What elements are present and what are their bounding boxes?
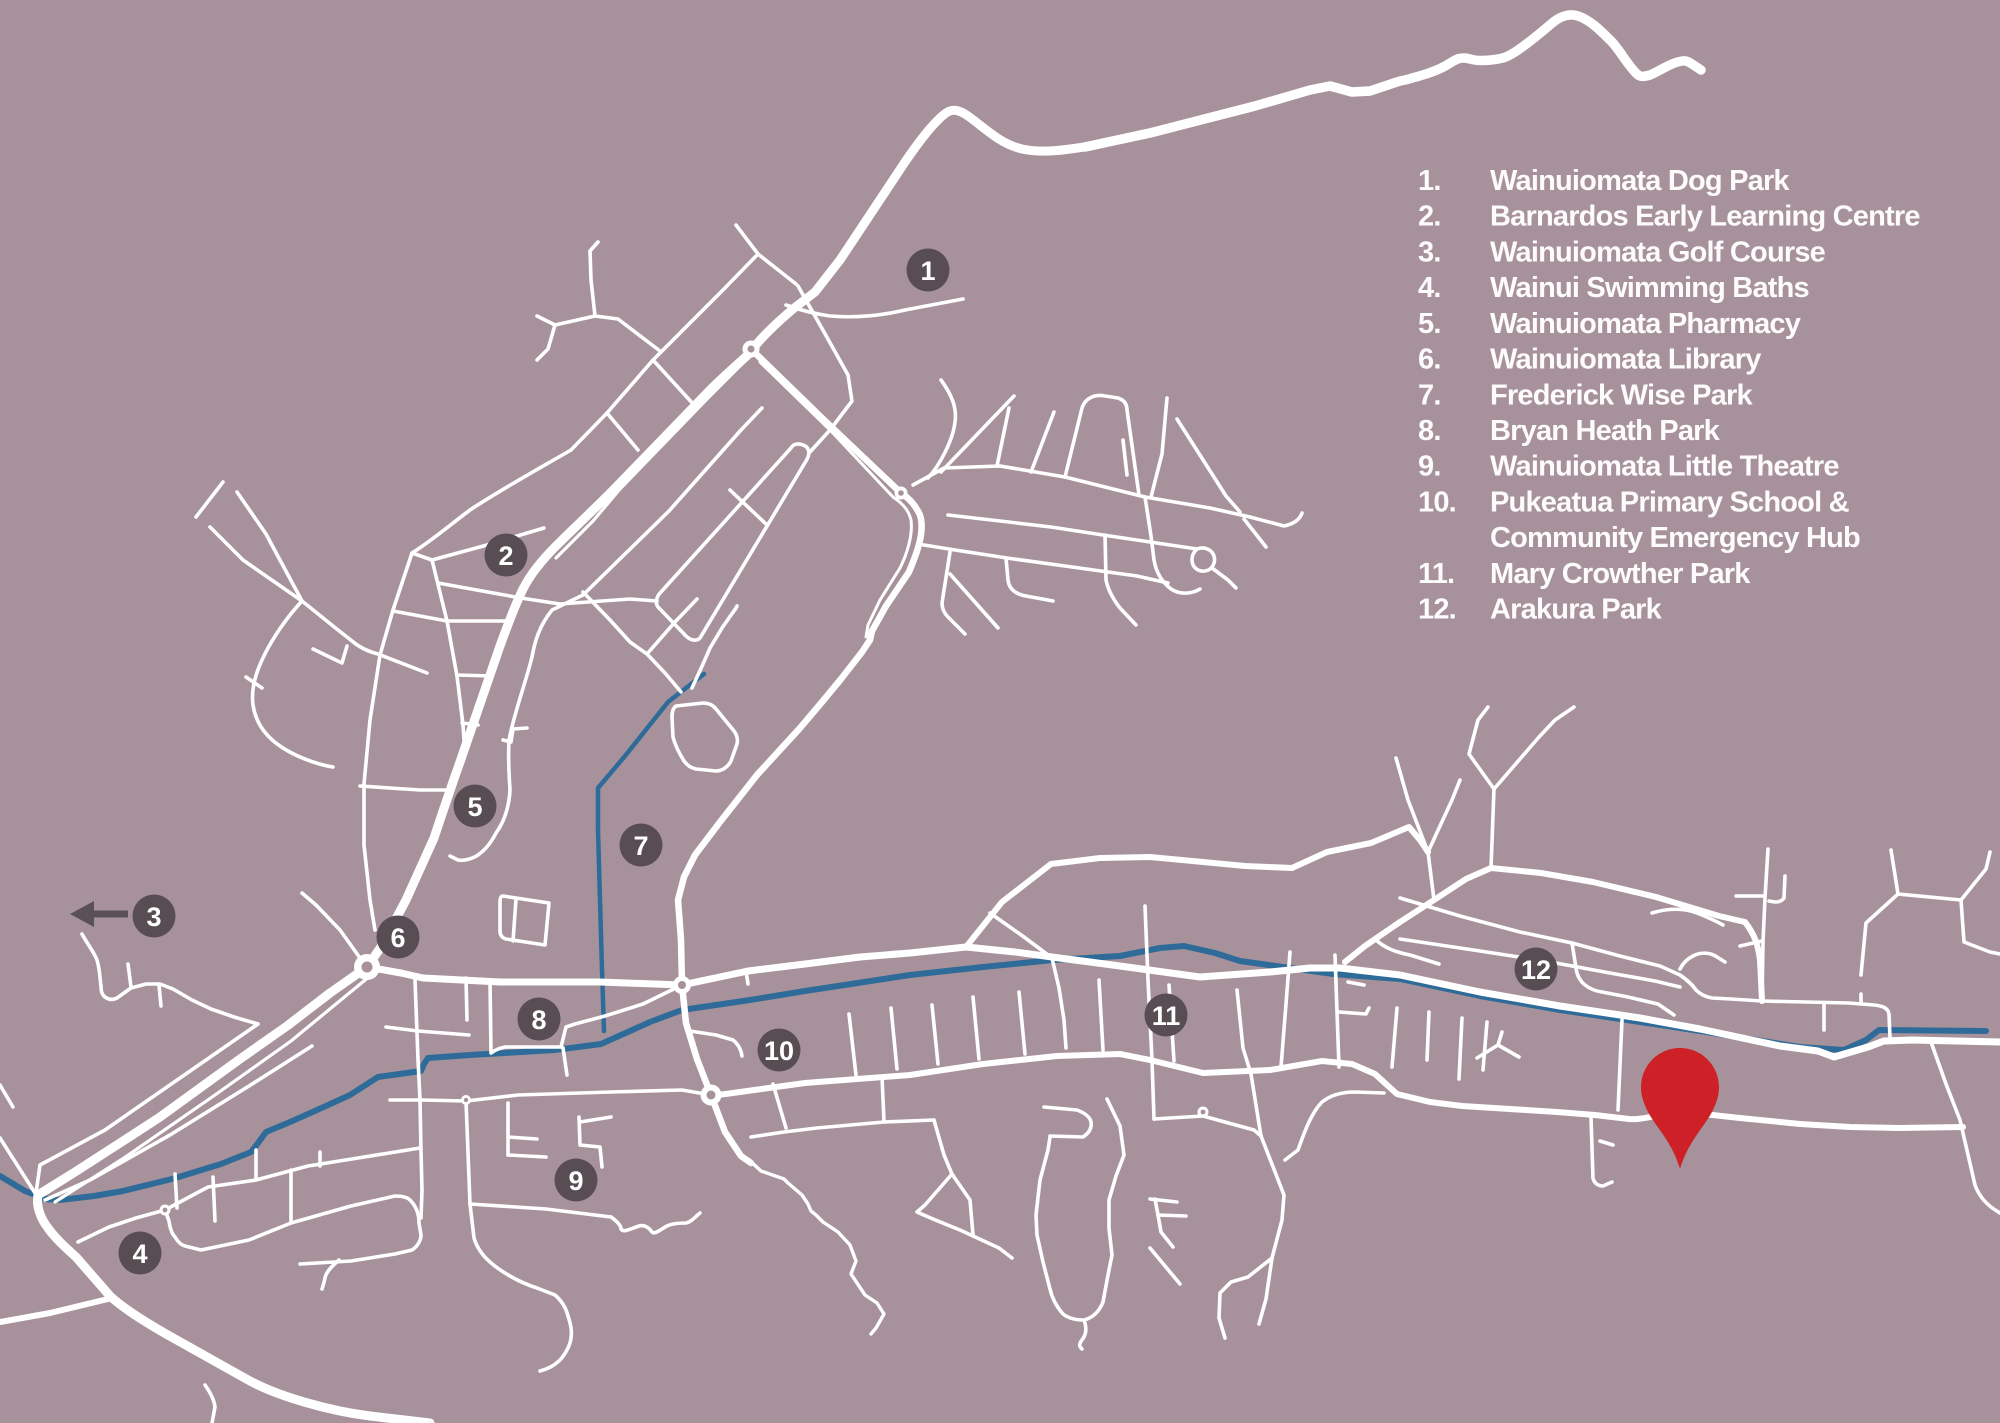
svg-text:Pukeatua Primary School &: Pukeatua Primary School &: [1490, 486, 1850, 518]
svg-text:4.: 4.: [1418, 272, 1441, 304]
svg-text:1.: 1.: [1418, 165, 1441, 197]
svg-text:Barnardos Early Learning Centr: Barnardos Early Learning Centre: [1490, 201, 1920, 233]
svg-text:5.: 5.: [1418, 308, 1441, 340]
svg-text:8.: 8.: [1418, 415, 1441, 447]
svg-text:6: 6: [390, 923, 405, 953]
svg-text:Wainuiomata Pharmacy: Wainuiomata Pharmacy: [1490, 308, 1801, 340]
svg-text:6.: 6.: [1418, 344, 1441, 376]
svg-text:Community Emergency Hub: Community Emergency Hub: [1490, 522, 1860, 554]
svg-text:1: 1: [920, 256, 935, 286]
svg-text:10: 10: [764, 1036, 794, 1066]
svg-text:11.: 11.: [1418, 558, 1454, 590]
svg-text:3: 3: [146, 902, 161, 932]
svg-text:Wainuiomata Library: Wainuiomata Library: [1490, 344, 1761, 376]
svg-text:Wainui Swimming Baths: Wainui Swimming Baths: [1490, 272, 1809, 304]
svg-text:2: 2: [498, 541, 513, 571]
svg-text:7.: 7.: [1418, 379, 1441, 411]
svg-text:Bryan Heath Park: Bryan Heath Park: [1490, 415, 1721, 447]
svg-text:Wainuiomata Golf Course: Wainuiomata Golf Course: [1490, 236, 1826, 268]
svg-text:3.: 3.: [1418, 236, 1441, 268]
svg-text:Frederick Wise Park: Frederick Wise Park: [1490, 379, 1753, 411]
svg-text:12: 12: [1521, 955, 1551, 985]
svg-text:9: 9: [568, 1166, 583, 1196]
svg-text:10.: 10.: [1418, 486, 1456, 518]
svg-text:2.: 2.: [1418, 201, 1441, 233]
svg-text:12.: 12.: [1418, 594, 1456, 626]
svg-text:Wainuiomata Little Theatre: Wainuiomata Little Theatre: [1490, 451, 1839, 483]
svg-text:7: 7: [633, 831, 648, 861]
svg-text:8: 8: [531, 1005, 546, 1035]
svg-text:Mary Crowther Park: Mary Crowther Park: [1490, 558, 1751, 590]
svg-text:4: 4: [132, 1239, 147, 1269]
svg-text:5: 5: [467, 792, 482, 822]
svg-text:11: 11: [1152, 1001, 1181, 1031]
svg-text:9.: 9.: [1418, 451, 1441, 483]
svg-text:Arakura Park: Arakura Park: [1490, 594, 1663, 626]
svg-text:Wainuiomata Dog Park: Wainuiomata Dog Park: [1490, 165, 1790, 197]
